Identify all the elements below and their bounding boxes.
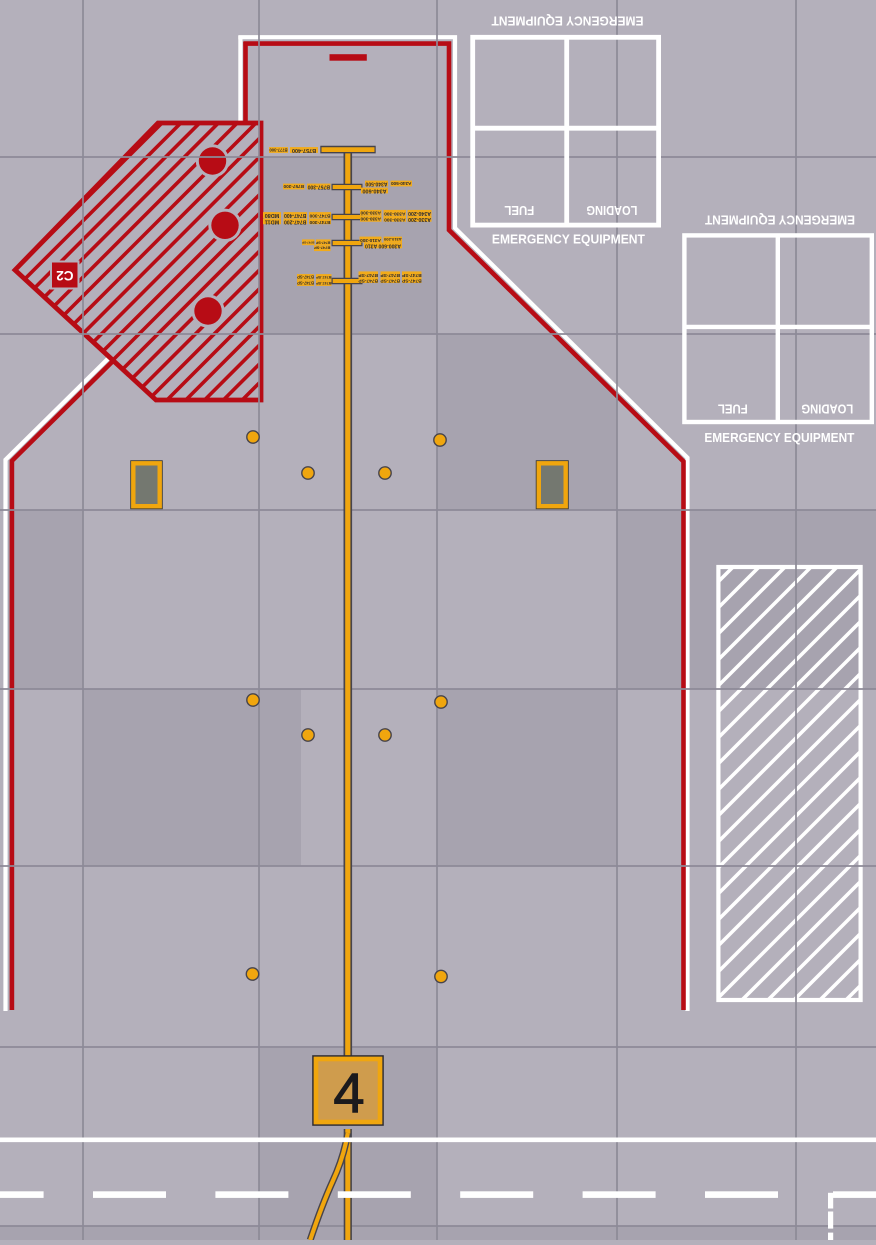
svg-text:B747-SP: B747-SP — [380, 272, 400, 278]
svg-text:EMERGENCY EQUIPMENT: EMERGENCY EQUIPMENT — [492, 232, 645, 246]
svg-text:B747-SP: B747-SP — [297, 281, 314, 286]
svg-text:B747-SP: B747-SP — [380, 278, 400, 284]
svg-text:B747-SP: B747-SP — [302, 240, 314, 244]
svg-text:B757-300: B757-300 — [283, 184, 304, 189]
svg-text:A330-300: A330-300 — [384, 216, 406, 222]
svg-text:MD11: MD11 — [265, 218, 279, 224]
svg-text:FUEL: FUEL — [504, 203, 534, 217]
svg-text:A330-300: A330-300 — [360, 216, 381, 221]
svg-text:B747-SP: B747-SP — [401, 272, 421, 278]
svg-text:4: 4 — [333, 1061, 364, 1124]
svg-text:A330-300: A330-300 — [384, 210, 406, 216]
svg-text:B747-SP: B747-SP — [358, 272, 378, 278]
svg-text:EMERGENCY EQUIPMENT: EMERGENCY EQUIPMENT — [491, 14, 643, 28]
svg-text:B757-300: B757-300 — [307, 184, 330, 190]
svg-text:B777-300: B777-300 — [269, 148, 288, 153]
svg-text:A310-300: A310-300 — [360, 237, 381, 243]
svg-text:B747-SP: B747-SP — [314, 246, 331, 251]
svg-text:B747-SP: B747-SP — [401, 278, 421, 284]
svg-text:LOADING: LOADING — [801, 402, 853, 416]
svg-text:B747-300: B747-300 — [309, 219, 330, 225]
svg-text:A300-600 A310: A300-600 A310 — [365, 242, 401, 248]
svg-text:B747-400: B747-400 — [284, 212, 307, 218]
svg-text:A330-200: A330-200 — [408, 216, 431, 222]
svg-text:C2: C2 — [56, 268, 73, 283]
svg-text:EMERGENCY EQUIPMENT: EMERGENCY EQUIPMENT — [705, 212, 855, 226]
svg-text:B747-SP: B747-SP — [358, 278, 378, 284]
svg-text:B757-400: B757-400 — [292, 147, 316, 153]
svg-text:B747-SP: B747-SP — [316, 275, 332, 279]
svg-text:A310-200: A310-200 — [383, 237, 401, 242]
svg-text:B747-300: B747-300 — [309, 213, 330, 219]
svg-text:A340-600: A340-600 — [362, 188, 386, 194]
svg-text:FUEL: FUEL — [718, 402, 748, 416]
svg-text:EMERGENCY EQUIPMENT: EMERGENCY EQUIPMENT — [704, 431, 854, 445]
svg-text:B747-SP: B747-SP — [297, 275, 314, 280]
svg-text:LOADING: LOADING — [586, 203, 637, 217]
svg-text:MD80: MD80 — [265, 212, 280, 218]
svg-text:B747-200: B747-200 — [284, 218, 307, 224]
svg-text:A340-200: A340-200 — [408, 210, 431, 216]
svg-text:A330-300: A330-300 — [360, 210, 381, 215]
svg-text:A340-500: A340-500 — [391, 181, 412, 186]
svg-text:A340-500: A340-500 — [365, 181, 387, 187]
svg-text:B747-SP: B747-SP — [315, 240, 330, 244]
svg-text:B747-SP: B747-SP — [316, 281, 332, 285]
